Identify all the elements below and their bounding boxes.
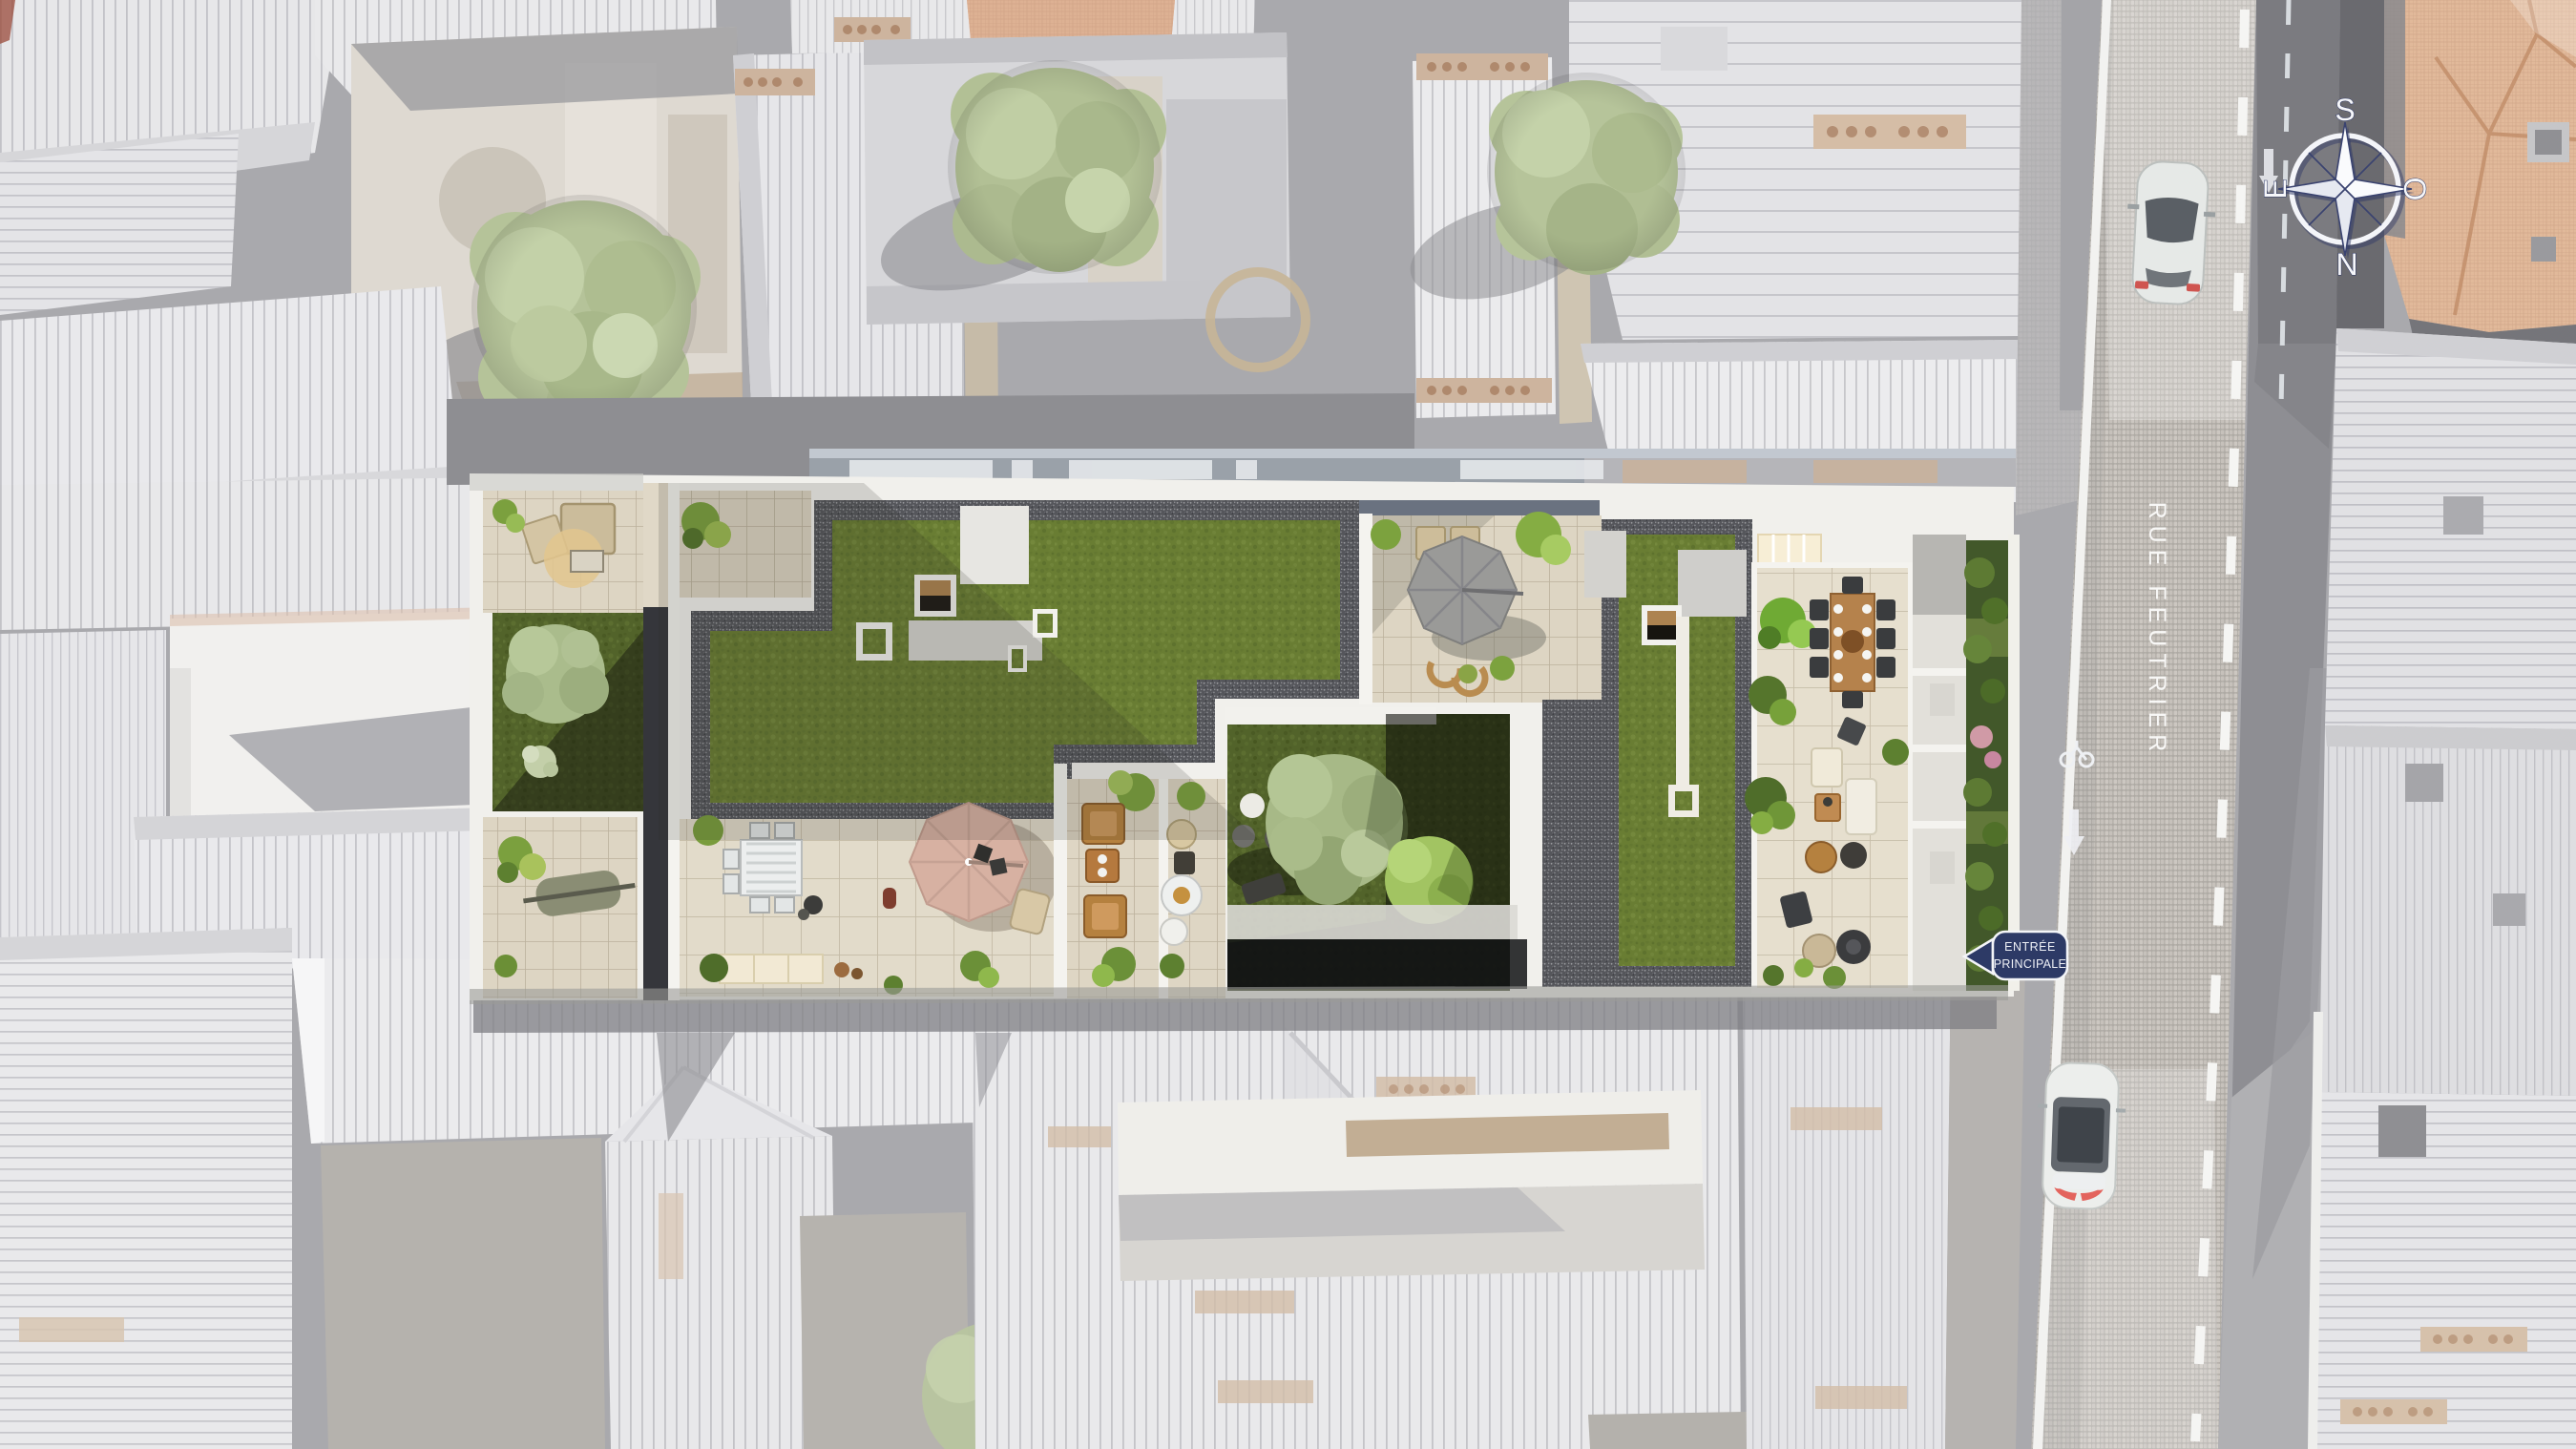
- svg-text:PRINCIPALE: PRINCIPALE: [1994, 957, 2066, 971]
- svg-text:RUE FEUTRIER: RUE FEUTRIER: [2144, 502, 2170, 759]
- svg-text:S: S: [2335, 93, 2355, 127]
- svg-text:N: N: [2335, 247, 2357, 282]
- svg-text:O: O: [2398, 178, 2432, 201]
- svg-text:E: E: [2258, 178, 2293, 199]
- svg-text:ENTRÉE: ENTRÉE: [2004, 939, 2056, 954]
